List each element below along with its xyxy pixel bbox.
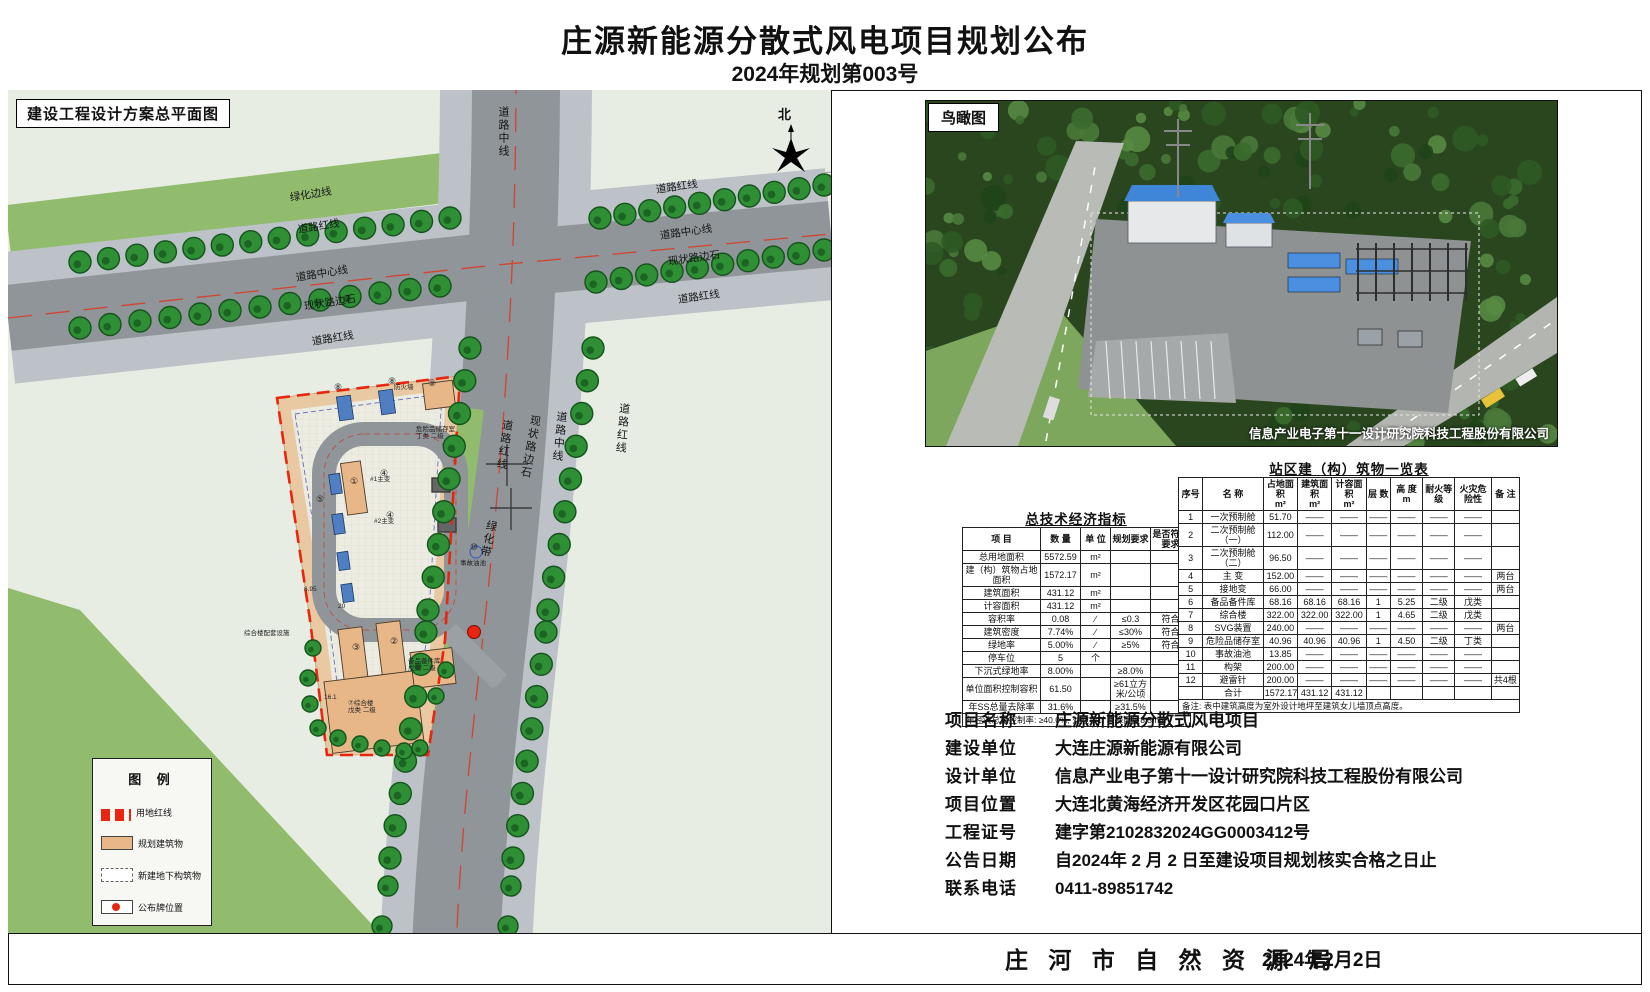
table-row: 5接地变66.00————————————两台 [1179,583,1520,596]
north-label: 北 [778,104,791,123]
info-label: 项目名称 [945,706,1031,731]
info-row: 联系电话0411-89851742 [945,874,1625,902]
circled-number: ① [350,476,358,487]
column-header: 火灾危险性 [1455,478,1491,511]
table-row: 下沉式绿地率8.00%≥8.0% [963,665,1191,678]
legend-label: 用地红线 [136,806,172,819]
column-header: 计容面积 m² [1332,478,1366,511]
column-header: 规划要求 [1111,528,1151,551]
column-header: 项 目 [963,528,1041,551]
circled-number: ⑨ [428,378,436,389]
info-label: 建设单位 [945,734,1031,759]
table-row: 容积率0.08∕≤0.3符合 [963,613,1191,626]
announcement-board-dot [468,626,481,639]
planning-announcement-page: 庄源新能源分散式风电项目规划公布 2024年规划第003号 [0,0,1650,992]
column-header: 占地面积 m² [1263,478,1297,511]
site-annotation: 6.95 [304,586,317,593]
table-row: 11构架200.00———————————— [1179,661,1520,674]
board-swatch-icon [101,900,133,914]
column-header: 建筑面积 m² [1298,478,1332,511]
circled-number: ③ [352,642,360,653]
buildings-list-table: 序号名 称占地面积 m²建筑面积 m²计容面积 m²层 数高 度 m耐火等级火灾… [1178,477,1520,713]
page-title: 庄源新能源分散式风电项目规划公布 [0,16,1650,61]
project-info: 项目名称庄源新能源分散式风电项目建设单位大连庄源新能源有限公司设计单位信息产业电… [945,706,1625,902]
info-label: 工程证号 [945,818,1031,843]
site-annotation: 16.1 [324,694,337,701]
birds-eye-panel: 鸟瞰图 信息产业电子第十一设计研究院科技工程股份有限公司 [925,100,1558,447]
info-label: 设计单位 [945,762,1031,787]
column-header: 耐火等级 [1423,478,1455,511]
birds-eye-title: 鸟瞰图 [928,103,999,132]
legend-label: 规划建筑物 [138,837,183,850]
column-header: 高 度 m [1390,478,1422,511]
info-value: 自2024年 2 月 2 日至建设项目规划核实合格之日止 [1055,846,1437,871]
info-label: 项目位置 [945,790,1031,815]
circled-number: ④ [380,468,388,479]
table-row: 4主 变152.00————————————两台 [1179,570,1520,583]
table-row: 停车位5个 [963,652,1191,665]
info-row: 设计单位信息产业电子第十一设计研究院科技工程股份有限公司 [945,762,1625,790]
legend-item: 公布牌位置 [101,900,211,916]
road-label: 道路中线 [495,106,511,158]
site-annotation: 事故油池 [460,560,486,567]
column-header: 层 数 [1366,478,1390,511]
info-row: 项目名称庄源新能源分散式风电项目 [945,706,1625,734]
info-row: 工程证号建字第2102832024GG0003412号 [945,818,1625,846]
redline-swatch-icon [101,809,131,821]
circled-number: ⑤ [316,494,324,505]
footer-date: 2024年2月2日 [1262,945,1382,972]
info-value: 庄源新能源分散式风电项目 [1055,706,1259,731]
site-annotation: 综合楼配套设施 [244,630,290,637]
column-header: 名 称 [1203,478,1264,511]
footer-divider [8,933,1641,934]
column-header: 备 注 [1491,478,1519,511]
legend-item: 用地红线 [101,804,211,820]
circled-number: ④ [386,510,394,521]
table-row: 9危险品储存室40.9640.9640.9614.50二级丁类 [1179,635,1520,648]
legend-title: 图 例 [93,769,211,788]
info-value: 大连庄源新能源有限公司 [1055,734,1242,759]
table-row: 1一次预制舱51.70———————————— [1179,511,1520,524]
circled-number: ② [390,636,398,647]
info-value: 信息产业电子第十一设计研究院科技工程股份有限公司 [1055,762,1463,787]
info-row: 公告日期自2024年 2 月 2 日至建设项目规划核实合格之日止 [945,846,1625,874]
site-annotation: 防火墙 [394,384,414,391]
table-row: 6备品备件库68.1668.1668.1615.25二级戊类 [1179,596,1520,609]
table-row: 8SVG装置240.00————————————两台 [1179,622,1520,635]
building-swatch-icon [101,836,133,850]
column-header: 序号 [1179,478,1203,511]
site-annotation: 危险品储存室 丁类 二级 [416,426,455,440]
table-row: 单位面积控制容积61.50≥61立方米/公顷 [963,678,1191,701]
table-row: 3二次预制舱（二）96.50———————————— [1179,547,1520,570]
buildings-table-title: 站区建（构）筑物一览表 [1178,458,1520,478]
page-subtitle: 2024年规划第003号 [0,58,1650,88]
legend-label: 新建地下构筑物 [138,869,201,882]
table-row: 总用地面积5572.59m² [963,551,1191,564]
circled-number: ⑩ [470,542,478,553]
legend-item: 规划建筑物 [101,836,211,852]
info-row: 建设单位大连庄源新能源有限公司 [945,734,1625,762]
column-header: 单 位 [1081,528,1111,551]
info-value: 建字第2102832024GG0003412号 [1055,818,1310,843]
site-plan-title: 建设工程设计方案总平面图 [16,99,230,128]
table-row: 计容面积431.12m² [963,600,1191,613]
circled-number: ⑧ [334,382,342,393]
info-value: 0411-89851742 [1055,879,1173,899]
underground-swatch-icon [101,868,133,882]
site-annotation: ⑦综合楼 戊类 二级 [348,700,376,714]
column-header: 数 量 [1041,528,1081,551]
birds-eye-caption: 信息产业电子第十一设计研究院科技工程股份有限公司 [1249,423,1549,442]
table-row: 建筑面积431.12m² [963,587,1191,600]
info-label: 公告日期 [945,846,1031,871]
table-row: 2二次预制舱（一）112.00———————————— [1179,524,1520,547]
table-row: 建（构）筑物占地面积1572.17m² [963,564,1191,587]
site-annotation: 备品备件库 戊类 二级 [408,658,441,672]
table-row: 10事故油池13.85———————————— [1179,648,1520,661]
site-plan-panel: 建设工程设计方案总平面图 北 绿化边线道路红线道路中心线现状路边石道路红线道路红… [8,90,832,933]
table-row: 建筑密度7.74%∕≤30%符合 [963,626,1191,639]
economic-indicators-table: 项 目数 量单 位规划要求是否符合要求总用地面积5572.59m²建（构）筑物占… [962,527,1191,727]
birds-eye-rendering [926,101,1557,446]
table-row: 合计1572.17431.12431.12 [1179,687,1520,700]
circled-number: ⑧ [388,376,396,387]
info-label: 联系电话 [945,874,1031,899]
table-row: 7综合楼322.00322.00322.0014.65二级戊类 [1179,609,1520,622]
legend-label: 公布牌位置 [138,901,183,914]
table-row: 绿地率5.00%∕≥5%符合 [963,639,1191,652]
table-row: 12避雷针200.00————————————共4根 [1179,674,1520,687]
info-row: 项目位置大连北黄海经济开发区花园口片区 [945,790,1625,818]
economic-table-title: 总技术经济指标 [962,508,1190,528]
legend-item: 新建地下构筑物 [101,868,211,884]
map-legend: 图 例 用地红线规划建筑物新建地下构筑物公布牌位置 [92,758,212,926]
info-value: 大连北黄海经济开发区花园口片区 [1055,790,1310,815]
site-annotation: 20 [338,603,345,610]
